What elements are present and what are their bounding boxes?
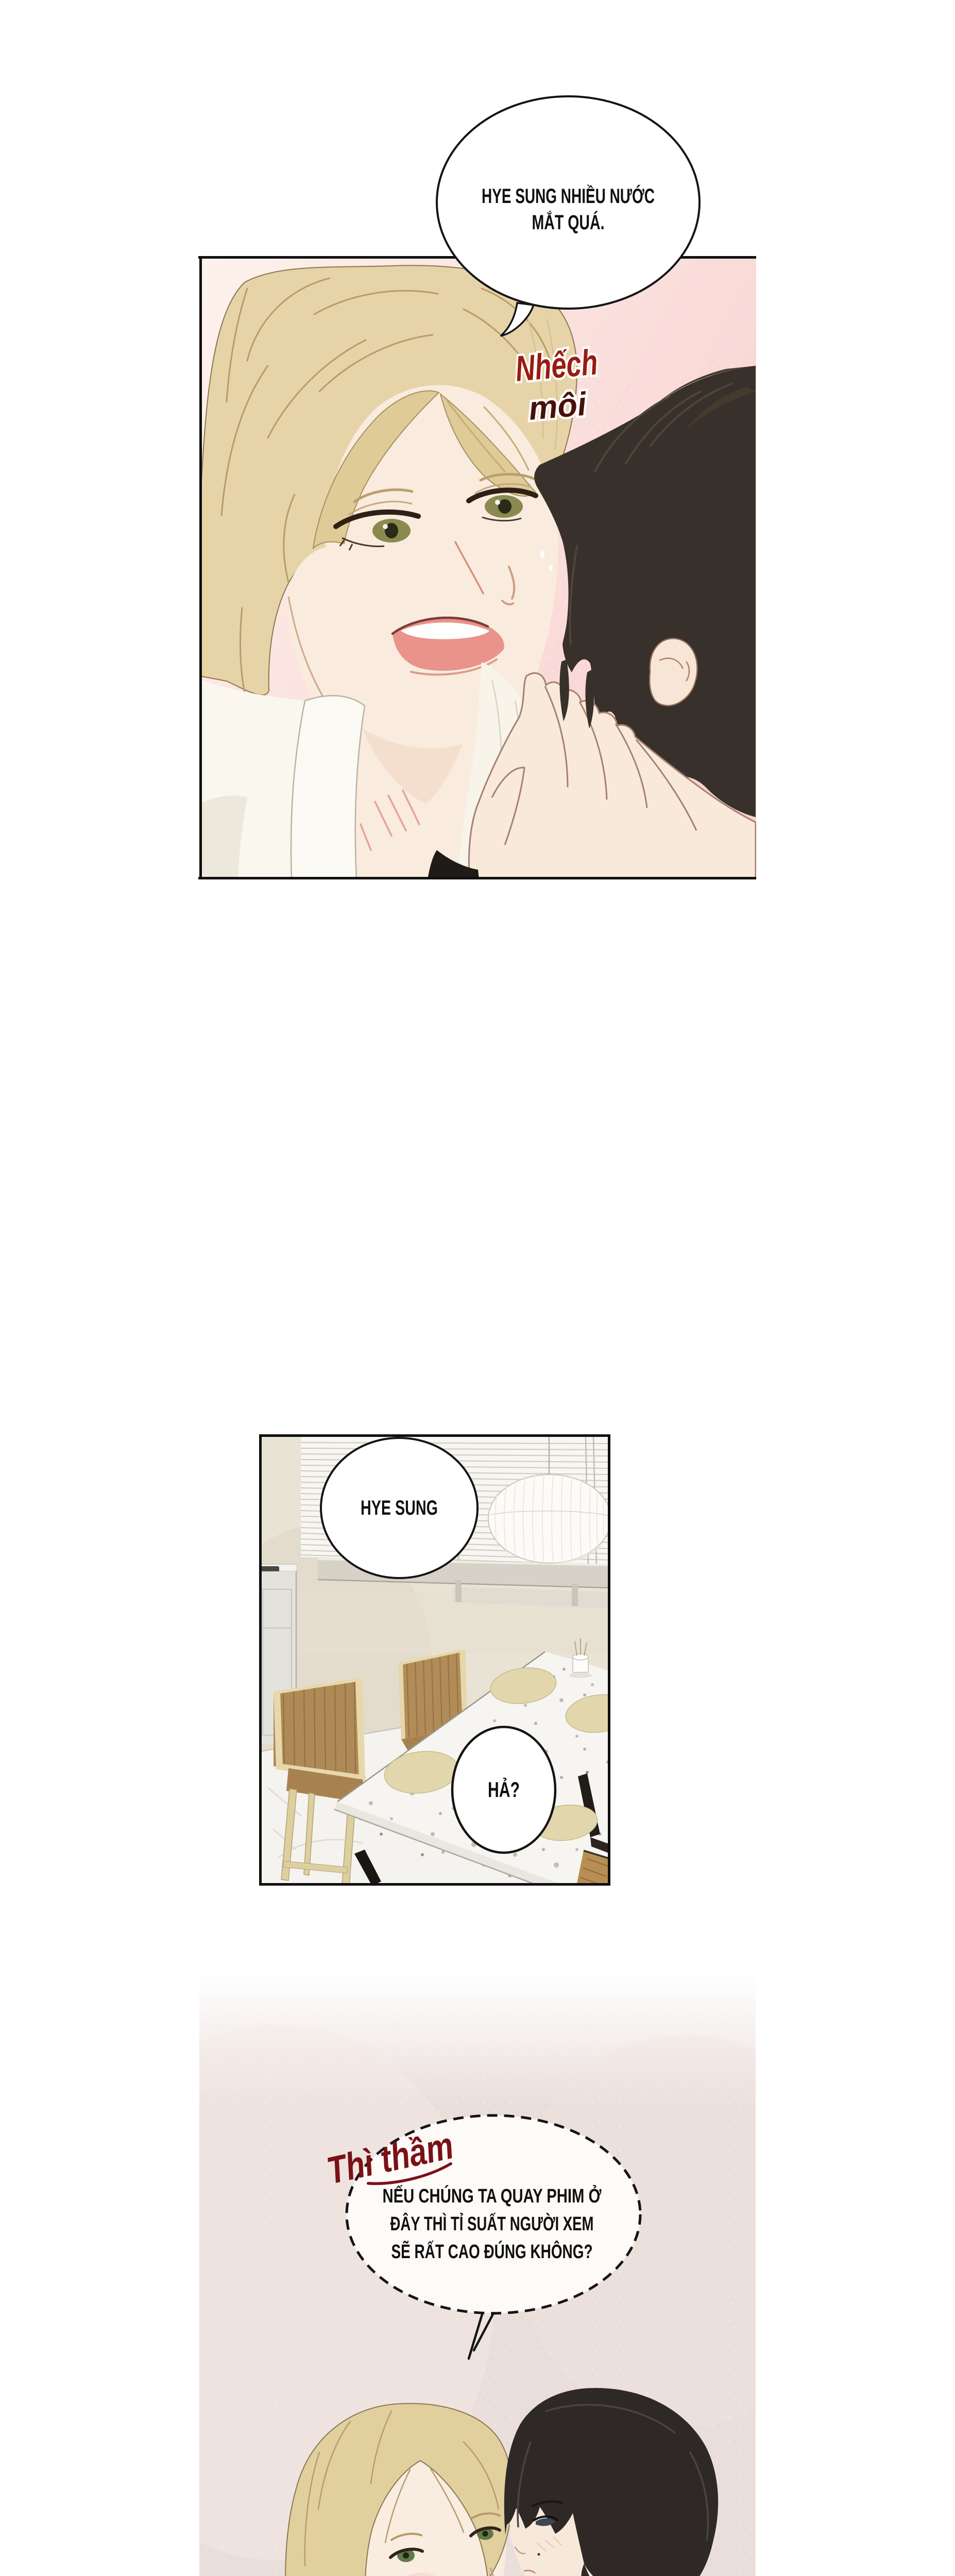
svg-text:ĐÂY THÌ TỈ SUẤT NGƯỜI XEM: ĐÂY THÌ TỈ SUẤT NGƯỜI XEM xyxy=(390,2212,594,2235)
svg-text:MẮT QUÁ.: MẮT QUÁ. xyxy=(532,210,605,234)
svg-text:Nhếch: Nhếch xyxy=(514,342,599,389)
svg-text:SẼ RẤT CAO ĐÚNG KHÔNG?: SẼ RẤT CAO ĐÚNG KHÔNG? xyxy=(391,2240,593,2263)
svg-text:HYE SUNG: HYE SUNG xyxy=(361,1497,438,1519)
svg-text:môi: môi xyxy=(527,385,588,427)
svg-text:HẢ?: HẢ? xyxy=(488,1777,520,1802)
svg-text:HYE SUNG NHIỀU NƯỚC: HYE SUNG NHIỀU NƯỚC xyxy=(482,184,655,208)
svg-text:NẾU CHÚNG TA QUAY PHIM Ở: NẾU CHÚNG TA QUAY PHIM Ở xyxy=(383,2184,602,2207)
